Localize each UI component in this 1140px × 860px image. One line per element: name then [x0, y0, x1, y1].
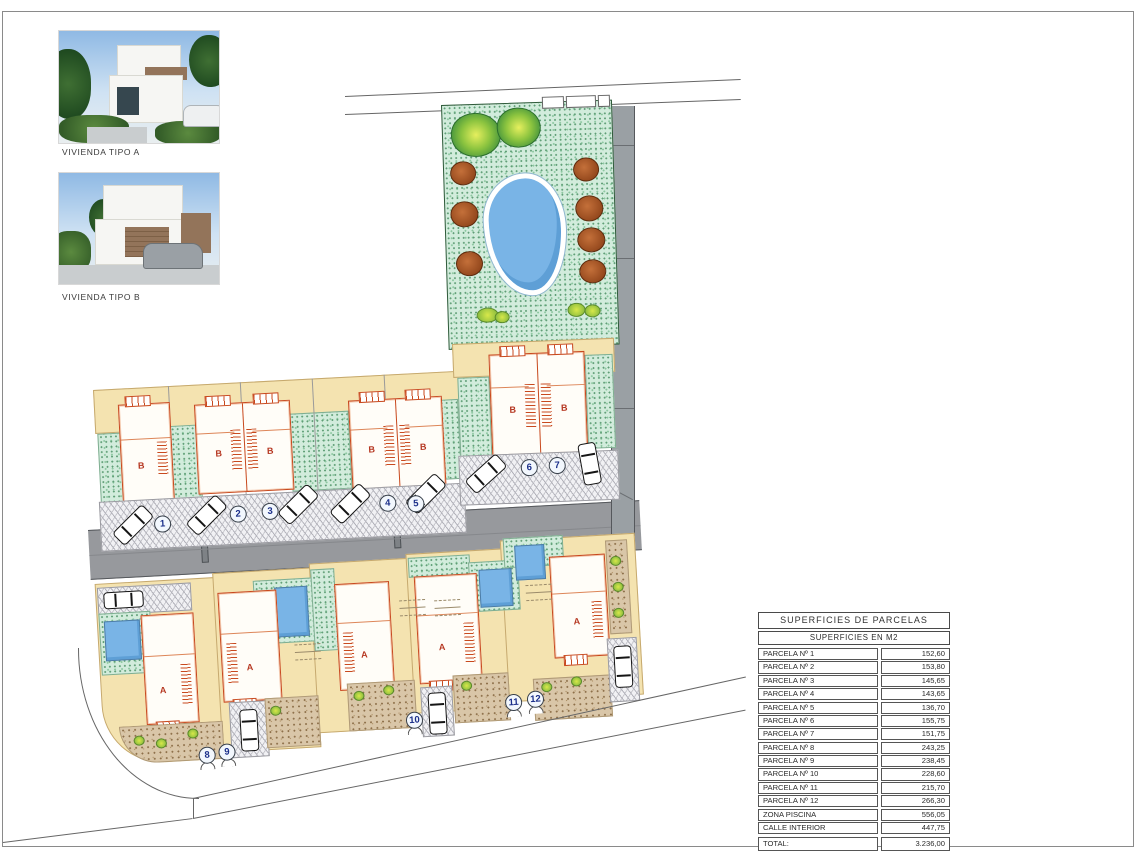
parcel-label: PARCELA Nº 7: [758, 728, 878, 740]
house-type-label: A: [246, 662, 253, 672]
house-type-label: B: [420, 442, 427, 452]
parcel-area-value: 151,75: [881, 728, 950, 740]
table-row: PARCELA Nº 8 243,25: [758, 742, 950, 754]
parcel-label: PARCELA Nº 9: [758, 755, 878, 767]
table-row: PARCELA Nº 10 228,60: [758, 768, 950, 780]
top-street-curb-outer: [345, 79, 741, 97]
parcel-number-9: 9: [218, 743, 236, 761]
table-row: PARCELA Nº 4 143,65: [758, 688, 950, 700]
table-rows: PARCELA Nº 1 152,60 PARCELA Nº 2 153,80 …: [758, 648, 950, 834]
staircase: [246, 429, 258, 469]
path-joint: [612, 145, 634, 146]
parcel-number-8: 8: [198, 746, 216, 764]
house-type-label: A: [439, 642, 446, 652]
terrace-steps: [434, 599, 461, 616]
house-type-a-parcel-10: A: [334, 581, 395, 691]
terrace-steps: [294, 643, 321, 660]
house-type-label: B: [561, 403, 568, 413]
roof-terrace: [358, 391, 385, 403]
table-row: PARCELA Nº 11 215,70: [758, 782, 950, 794]
bush: [584, 304, 600, 317]
parcel-area-value: 556,05: [881, 809, 950, 821]
house-type-label: B: [138, 460, 145, 470]
pool-zone: [441, 100, 620, 350]
house-type-label: B: [509, 405, 516, 415]
parcel-label: PARCELA Nº 3: [758, 675, 878, 687]
staircase: [343, 632, 355, 673]
photo-label-a: VIVIENDA TIPO A: [62, 147, 140, 157]
roof-terrace: [499, 345, 525, 357]
parcel-area-value: 215,70: [881, 782, 950, 794]
garden: [289, 411, 353, 492]
upper-row-parcels-1-5: B B B B B 1 2: [93, 371, 465, 558]
table-row: PARCELA Nº 1 152,60: [758, 648, 950, 660]
parked-car: [613, 645, 633, 688]
total-label: TOTAL:: [758, 837, 878, 851]
parked-car: [143, 243, 203, 269]
total-value: 3.236,00: [881, 837, 950, 851]
render-photo-villa-b: [58, 172, 220, 285]
parked-car: [183, 105, 220, 127]
staircase: [591, 601, 603, 640]
table-row: PARCELA Nº 6 155,75: [758, 715, 950, 727]
driveway-parcel-9: [264, 695, 321, 748]
parcel-label: ZONA PISCINA: [758, 809, 878, 821]
parcel-area-value: 155,75: [881, 715, 950, 727]
interior-wall: [350, 428, 387, 431]
curb-jog: [193, 798, 194, 818]
garden: [585, 354, 617, 449]
tree: [456, 251, 484, 277]
house-type-a-parcel-9: A: [217, 590, 282, 703]
house-type-b-parcels-2-3: B B: [194, 400, 295, 495]
parked-car: [239, 709, 259, 752]
parcel-area-value: 143,65: [881, 688, 950, 700]
villa-a-window: [117, 87, 139, 115]
parcel-area-value: 152,60: [881, 648, 950, 660]
bush: [495, 311, 510, 323]
pool-equipment-box: [542, 96, 564, 109]
community-pool: [482, 172, 568, 297]
parcel-area-value: 243,25: [881, 742, 950, 754]
table-row: CALLE INTERIOR 447,75: [758, 822, 950, 834]
table-row: PARCELA Nº 7 151,75: [758, 728, 950, 740]
table-row: ZONA PISCINA 556,05: [758, 809, 950, 821]
roof-terrace: [547, 343, 573, 355]
interior-wall: [491, 386, 529, 388]
tree: [450, 161, 477, 186]
table-subtitle: SUPERFICIES EN M2: [758, 631, 950, 645]
parcel-label: PARCELA Nº 2: [758, 661, 878, 673]
roof-terrace: [252, 392, 279, 404]
parcel-number-11: 11: [505, 694, 523, 712]
driveway-parcel-11: [452, 672, 511, 723]
tree: [573, 157, 600, 182]
table-title: SUPERFICIES DE PARCELAS: [758, 612, 950, 629]
house-type-b-parcel-1: B: [118, 402, 175, 507]
driveway: [87, 127, 147, 143]
tree: [450, 201, 479, 228]
parcel-label: PARCELA Nº 6: [758, 715, 878, 727]
parcel-label: PARCELA Nº 5: [758, 702, 878, 714]
staircase: [226, 643, 238, 684]
staircase: [525, 384, 537, 428]
roof-terrace: [204, 395, 231, 407]
private-pool-parcel-9: [274, 586, 310, 638]
parcel-label: PARCELA Nº 11: [758, 782, 878, 794]
entry-porch: [563, 654, 588, 666]
house-type-b-parcels-6-7: B B: [488, 351, 588, 457]
parcel-label: PARCELA Nº 8: [758, 742, 878, 754]
private-pool-parcel-12: [514, 544, 546, 581]
house-type-a-parcel-12: A: [549, 554, 611, 659]
staircase: [541, 383, 553, 427]
interior-wall: [552, 591, 606, 595]
interior-wall: [221, 630, 278, 634]
interior-wall: [253, 429, 291, 432]
tree: [579, 259, 607, 284]
tree: [450, 112, 501, 158]
parcel-area-value: 145,65: [881, 675, 950, 687]
pool-equipment-box: [566, 95, 596, 108]
site-plan-sheet: VIVIENDA TIPO A VIVIENDA TIPO B: [0, 0, 1140, 860]
photo-label-b: VIVIENDA TIPO B: [62, 292, 140, 302]
parcel-number-10: 10: [406, 711, 424, 729]
house-type-label: B: [368, 444, 375, 454]
interior-wall: [337, 620, 390, 624]
staircase: [463, 622, 475, 663]
parcel-area-value: 136,70: [881, 702, 950, 714]
parcel-label: PARCELA Nº 4: [758, 688, 878, 700]
garden: [457, 377, 492, 462]
parcel-label: PARCELA Nº 12: [758, 795, 878, 807]
table-row: PARCELA Nº 3 145,65: [758, 675, 950, 687]
parcels-6-7: B B 6 7: [452, 338, 620, 512]
render-photo-villa-a: [58, 30, 220, 144]
parcel-area-value: 228,60: [881, 768, 950, 780]
staircase: [157, 441, 169, 475]
house-type-label: B: [215, 448, 222, 458]
tree: [575, 195, 604, 222]
interior-wall: [196, 432, 234, 435]
bottom-street-corner-curve: [78, 648, 199, 799]
pool-equipment-box: [598, 95, 610, 107]
areas-table: SUPERFICIES DE PARCELAS SUPERFICIES EN M…: [758, 612, 950, 851]
parcel-label: PARCELA Nº 1: [758, 648, 878, 660]
staircase: [399, 424, 411, 464]
table-row: PARCELA Nº 9 238,45: [758, 755, 950, 767]
private-pool-parcel-11: [478, 568, 513, 608]
staircase: [383, 425, 395, 465]
house-type-a-parcel-11: A: [414, 573, 483, 684]
table-row: PARCELA Nº 5 136,70: [758, 702, 950, 714]
bush: [567, 303, 585, 318]
parcel-area-value: 266,30: [881, 795, 950, 807]
table-row: PARCELA Nº 12 266,30: [758, 795, 950, 807]
parcel-area-value: 238,45: [881, 755, 950, 767]
interior-wall: [547, 384, 585, 386]
tree: [577, 227, 606, 253]
parcel-area-value: 153,80: [881, 661, 950, 673]
bottom-street-curb-left: [3, 818, 193, 843]
parcel-label: CALLE INTERIOR: [758, 822, 878, 834]
roof-terrace: [404, 388, 431, 400]
terrace-steps: [525, 584, 552, 601]
terrace-steps: [399, 599, 426, 616]
interior-wall: [121, 437, 171, 441]
table-row: PARCELA Nº 2 153,80: [758, 661, 950, 673]
house-type-label: A: [573, 616, 580, 626]
staircase: [230, 429, 242, 469]
parcel-area-value: 447,75: [881, 822, 950, 834]
parked-car: [103, 590, 144, 609]
parcel-label: PARCELA Nº 10: [758, 768, 878, 780]
parked-car: [427, 692, 447, 735]
table-total-row: TOTAL: 3.236,00: [758, 837, 950, 851]
house-type-label: A: [361, 649, 368, 659]
roof-terrace: [124, 395, 151, 407]
house-type-label: B: [267, 446, 274, 456]
interior-wall: [406, 425, 443, 428]
tree: [496, 107, 541, 148]
